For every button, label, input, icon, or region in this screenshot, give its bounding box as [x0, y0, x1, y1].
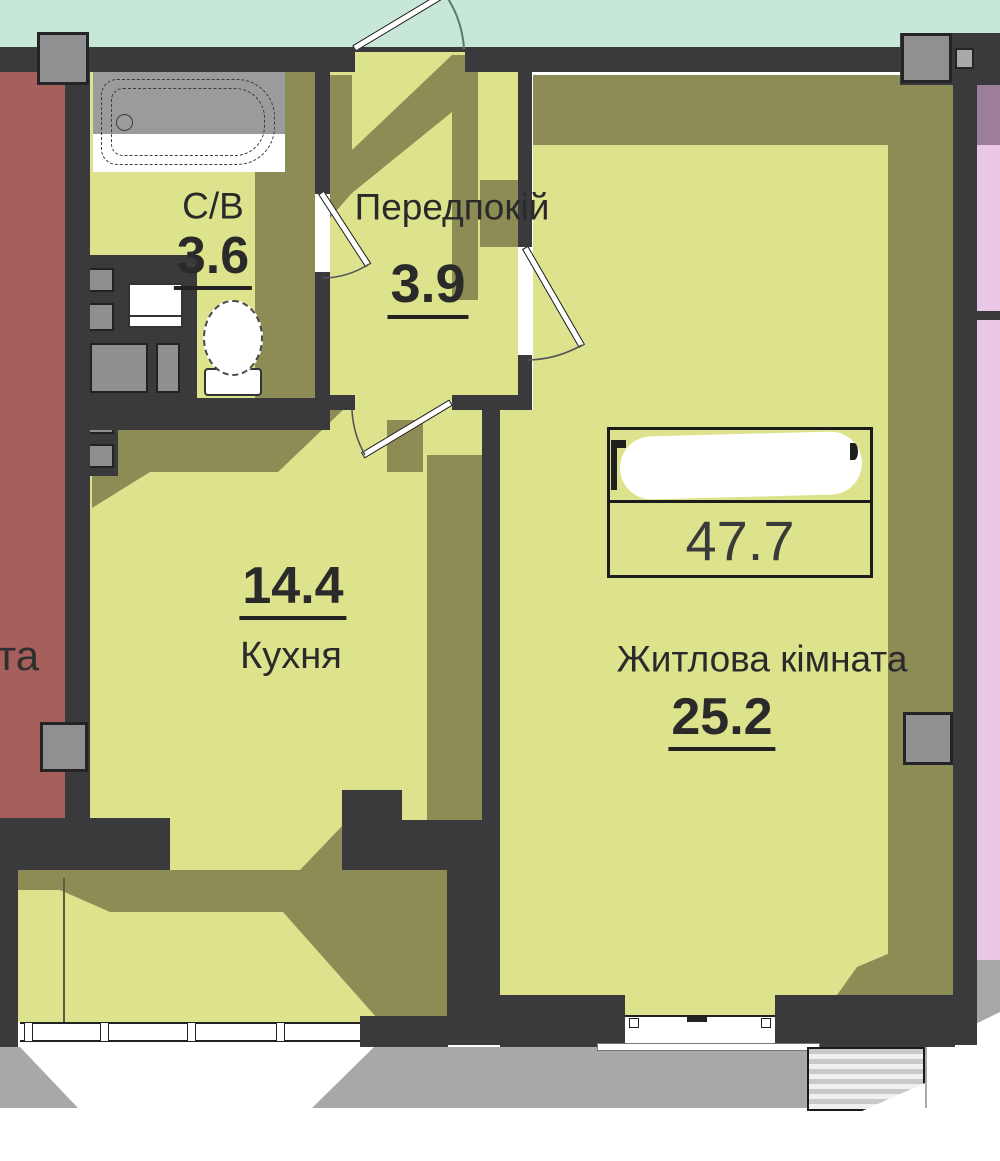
wall-bath-right-lower	[315, 272, 330, 398]
bathtub-drain	[116, 114, 133, 131]
bathtub-inner-outline	[111, 88, 265, 156]
wall-hall-living-lower	[518, 355, 532, 395]
living-window-mark-left	[629, 1018, 639, 1028]
neighbor-room-left	[0, 70, 65, 818]
washer-line	[130, 315, 181, 317]
living-label: Житлова кімната	[617, 641, 908, 678]
wall-red-bottom	[0, 818, 170, 870]
wall-kitchen-living	[482, 410, 500, 860]
erased-label-remnant-2	[615, 440, 626, 448]
floor-plan: та	[0, 0, 1000, 1161]
kitchen-shadow-right	[427, 455, 482, 823]
wall-living-bottom-right	[775, 995, 955, 1047]
wall-loggia-left	[0, 870, 18, 1047]
living-window-sill	[597, 1043, 820, 1051]
wall-loggia-corner	[360, 1016, 448, 1047]
column-mid-right	[903, 712, 953, 765]
vent-shaft-1	[88, 268, 114, 292]
loggia-window-mullion-3	[187, 1022, 196, 1042]
living-window-mark-right	[761, 1018, 771, 1028]
vent-shaft-3	[90, 343, 148, 393]
neighbor-right-divider-wall	[975, 311, 1000, 320]
wall-right	[953, 47, 977, 1045]
column-top-left	[37, 32, 89, 85]
kitchen-area: 14.4	[239, 560, 346, 620]
wall-bath-bottom	[85, 398, 330, 430]
loggia-window-mullion-2	[100, 1022, 109, 1042]
total-area-value: 47.7	[686, 513, 795, 569]
vent-shaft-2	[88, 303, 114, 331]
loggia-window-mullion-1	[24, 1022, 33, 1042]
living-area: 25.2	[668, 691, 775, 751]
wall-hall-kitchen-right	[452, 395, 532, 410]
column-top-right-small	[955, 48, 974, 69]
total-area-box-divider	[607, 500, 873, 503]
wall-kitchen-bottom-step	[342, 790, 402, 870]
wall-top-right	[465, 47, 902, 72]
drop-shadow-left	[0, 1047, 80, 1108]
wall-living-left-lower	[447, 860, 500, 1045]
column-top-right	[901, 33, 952, 83]
outside-top	[0, 0, 1000, 47]
neighbor-room-right-pink	[975, 145, 1000, 960]
neighbor-room-right-mauve	[975, 85, 1000, 145]
erased-label-blob	[619, 431, 863, 500]
toilet-bowl	[203, 300, 263, 376]
wall-hall-kitchen-left	[330, 395, 355, 410]
wall-living-bottom-left	[500, 995, 625, 1047]
bathroom-label: С/В	[182, 188, 244, 225]
column-mid-left	[40, 722, 88, 772]
entry-sill	[355, 47, 465, 52]
erased-label-remnant-3	[850, 443, 858, 460]
hallway-label: Передпокій	[355, 189, 550, 226]
neighbor-room-label-fragment: та	[0, 635, 39, 677]
vent-shaft-4	[156, 343, 180, 393]
loggia-glazing-line	[63, 878, 65, 1028]
wall-right-top-stub	[977, 47, 1000, 85]
loggia-window-mullion-4	[276, 1022, 285, 1042]
vent-shaft-6	[88, 444, 114, 468]
living-window-inner-strip	[625, 995, 775, 1015]
living-room-floor-left-strip	[500, 410, 533, 995]
kitchen-floor	[90, 430, 482, 823]
wall-bath-right-upper	[315, 72, 330, 194]
bathroom-area: 3.6	[174, 230, 252, 290]
hallway-area: 3.9	[387, 257, 468, 319]
kitchen-label: Кухня	[240, 637, 342, 675]
living-window-mark-center	[687, 1015, 707, 1022]
